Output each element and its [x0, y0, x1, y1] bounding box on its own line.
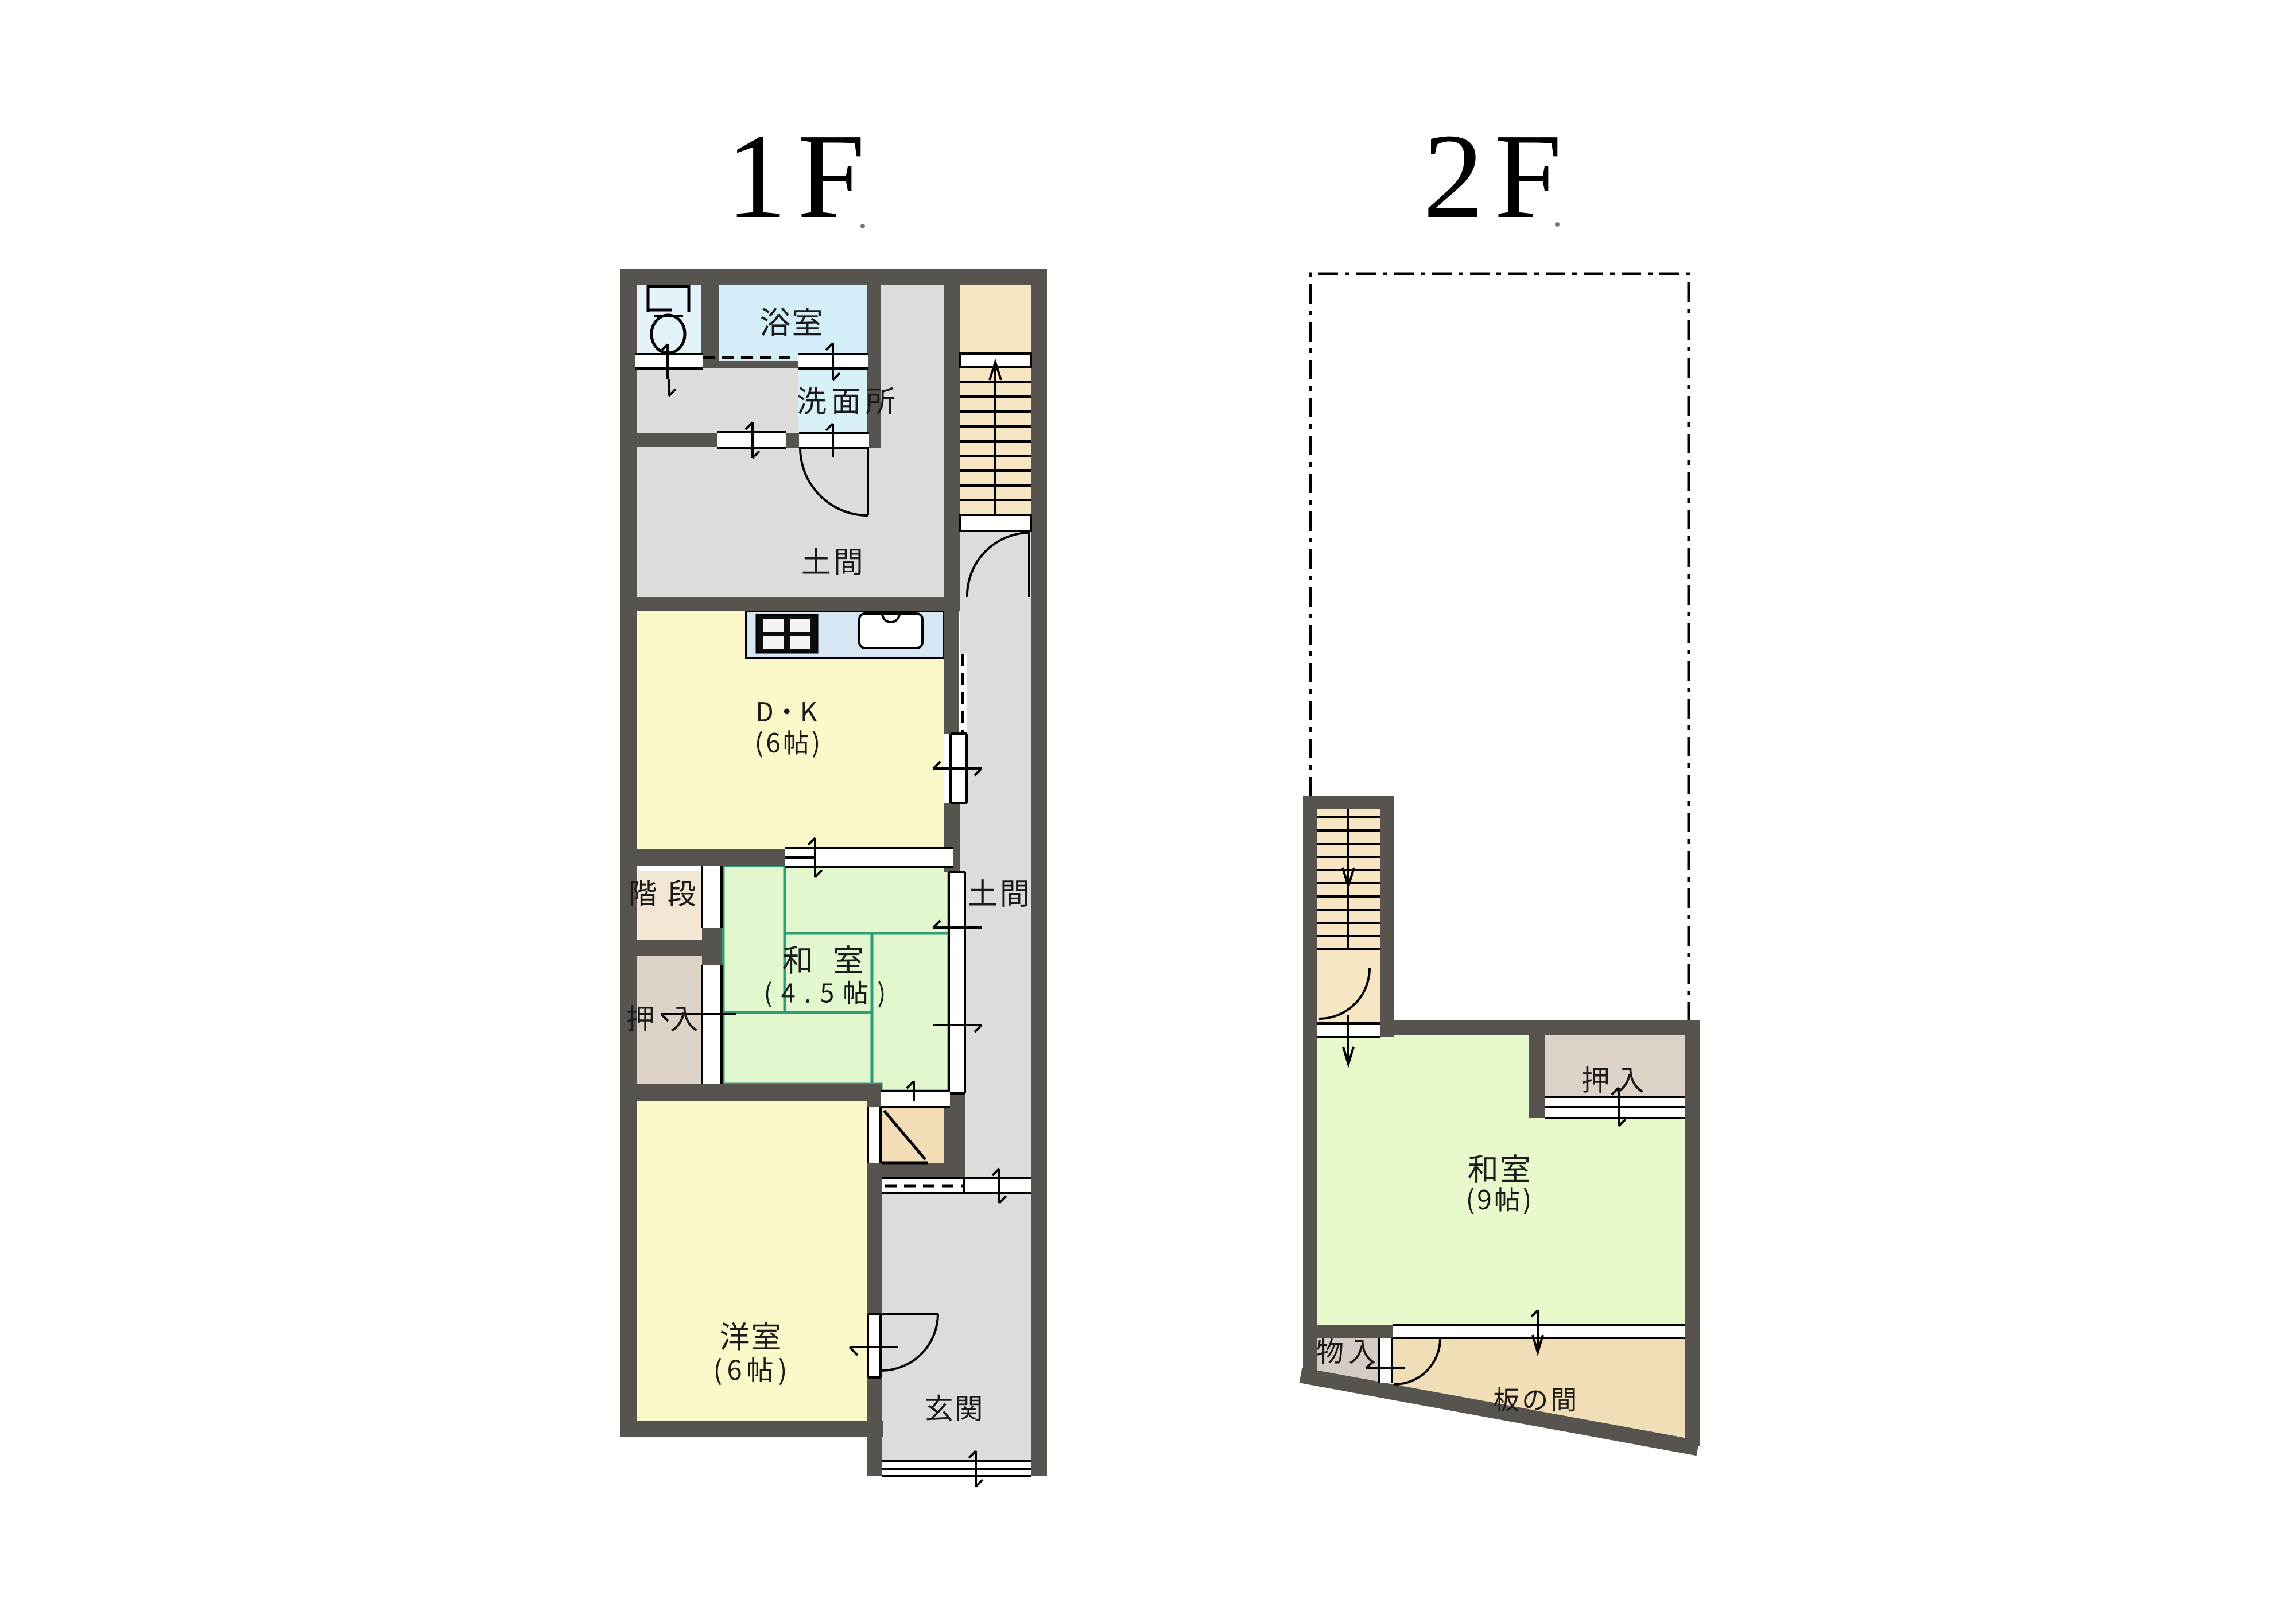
svg-text:1F: 1F [726, 108, 875, 243]
svg-text:2F: 2F [1423, 108, 1572, 243]
